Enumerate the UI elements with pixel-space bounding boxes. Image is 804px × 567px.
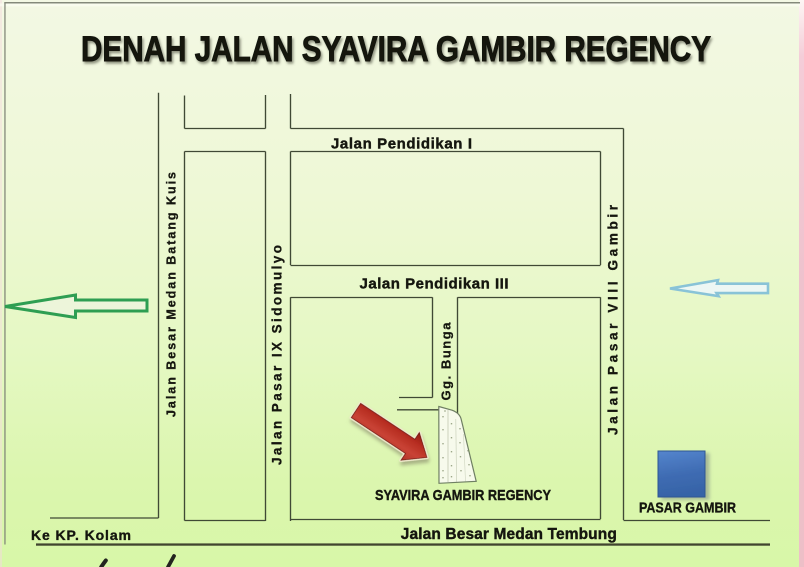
svg-text:Ke KP. Kolam: Ke KP. Kolam: [31, 527, 131, 543]
svg-text:Jalan Pasar VIII Gambir: Jalan Pasar VIII Gambir: [606, 204, 621, 435]
svg-text:Jalan Besar Medan Tembung: Jalan Besar Medan Tembung: [401, 526, 617, 543]
svg-text:SYAVIRA GAMBIR REGENCY: SYAVIRA GAMBIR REGENCY: [375, 487, 551, 504]
svg-text:DENAH JALAN SYAVIRA GAMBIR REG: DENAH JALAN SYAVIRA GAMBIR REGENCY: [81, 30, 711, 69]
svg-text:Gg. Bunga: Gg. Bunga: [439, 322, 454, 401]
svg-text:Jalan Pasar IX Sidomulyo: Jalan Pasar IX Sidomulyo: [270, 245, 285, 465]
svg-text:Jalan Pendidikan I: Jalan Pendidikan I: [331, 136, 472, 153]
svg-text:Jalan Besar Medan Batang Kuis: Jalan Besar Medan Batang Kuis: [165, 172, 179, 417]
svg-text:PASAR GAMBIR: PASAR GAMBIR: [639, 501, 736, 517]
svg-text:Jalan Pendidikan III: Jalan Pendidikan III: [360, 276, 509, 293]
